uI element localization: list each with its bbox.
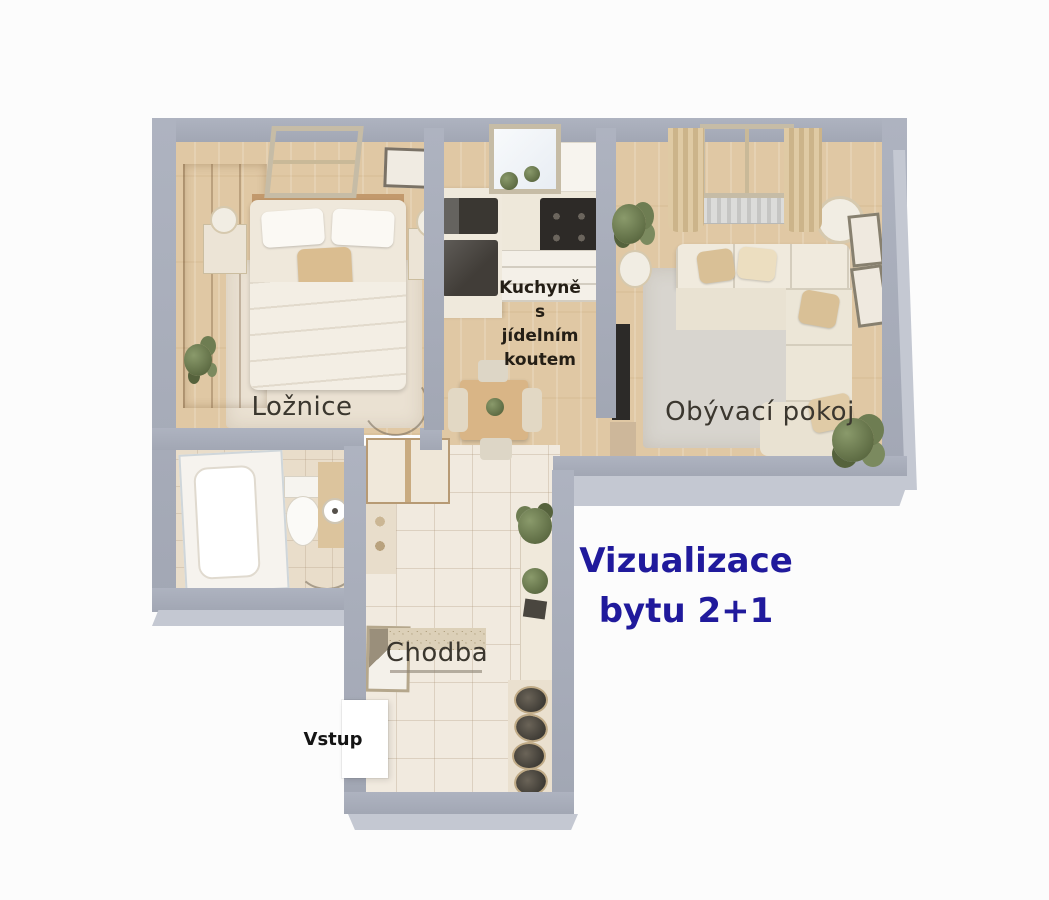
wall-hall-bottom-face — [348, 814, 578, 830]
hall-console-item — [523, 599, 547, 620]
radiator — [700, 196, 790, 224]
wall-hall-right — [552, 470, 574, 796]
sofa-pillow-2 — [736, 246, 777, 282]
bedroom-label: Ložnice — [227, 392, 377, 422]
nightstand-lamp-left — [210, 206, 238, 234]
floorplan-visualization: Ložnice Kuchyně s jídelním koutem Obývac… — [0, 0, 1049, 900]
wall-bedroom-door-stub — [420, 428, 442, 450]
cooktop — [540, 198, 598, 254]
sofa-pillow-1 — [696, 248, 736, 285]
wall-bedroom-kitchen — [424, 128, 444, 430]
wall-living-bottom-face — [558, 476, 910, 506]
bed-pillow-right — [331, 208, 395, 247]
curtain-left — [668, 128, 704, 232]
sink-drain — [332, 508, 338, 514]
curtain-right — [784, 128, 822, 232]
kitchen-window-plant-1 — [500, 172, 518, 190]
wall-left — [152, 118, 176, 612]
shower-tub — [178, 449, 289, 594]
hallway-label: Chodba — [362, 638, 512, 668]
microwave — [442, 198, 498, 234]
dining-chair-left — [448, 388, 468, 432]
living-room-label: Obývací pokoj — [660, 397, 860, 427]
cooktop-burners — [544, 202, 594, 250]
dining-table-plant — [486, 398, 504, 416]
sofa-pillow-3 — [797, 289, 840, 329]
entrance-label: Vstup — [283, 729, 383, 750]
wall-kitchen-living — [596, 128, 616, 418]
coat-rack — [364, 504, 396, 574]
wall-bedroom-bathroom — [152, 428, 364, 450]
toilet-tank — [284, 476, 322, 498]
bedroom-plant — [184, 344, 212, 376]
tub-inner — [193, 465, 261, 580]
kitchen-window-plant-2 — [524, 166, 540, 182]
hall-plant-2 — [522, 568, 548, 594]
dining-chair-right — [522, 388, 542, 432]
shoe-basket-1 — [514, 686, 548, 714]
plan-title: Vizualizace bytu 2+1 — [575, 536, 797, 636]
shoe-basket-3 — [512, 742, 546, 770]
wall-bathroom-bottom — [152, 588, 366, 610]
living-plant-pot — [618, 250, 652, 288]
dining-chair-bottom — [480, 438, 512, 460]
living-room-window — [700, 124, 794, 198]
living-plant-top-left — [612, 204, 646, 244]
hall-plant-1 — [518, 508, 552, 544]
chodba-underline — [390, 670, 482, 673]
kitchen-label: Kuchyně s jídelním koutem — [465, 276, 615, 372]
living-wall-frame-1 — [847, 212, 884, 267]
wall-hall-bottom — [344, 792, 574, 814]
skylight-window — [264, 126, 364, 198]
bed-pillow-left — [261, 208, 325, 248]
wall-bathroom-bottom-face — [152, 610, 366, 626]
